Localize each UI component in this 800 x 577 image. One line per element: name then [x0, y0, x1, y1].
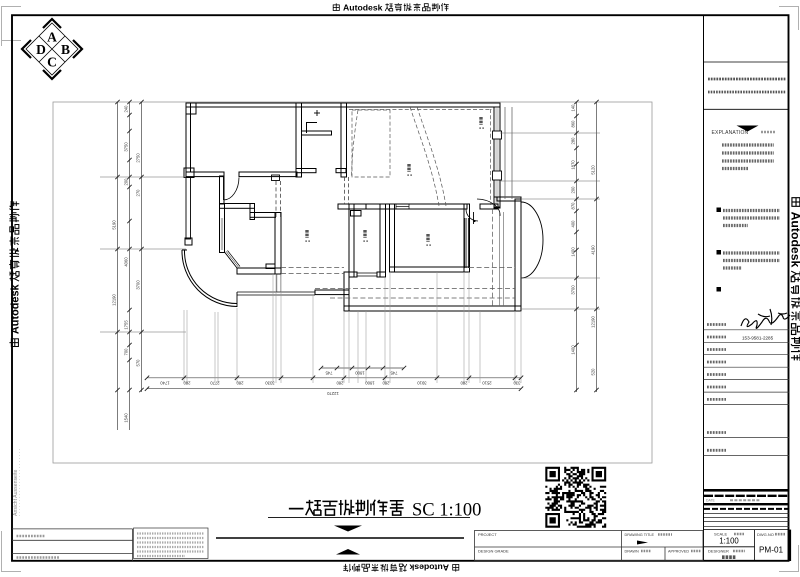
svg-text:520: 520 [591, 368, 596, 376]
svg-text:280: 280 [236, 380, 244, 385]
svg-text:Ansicht Aussenseite: Ansicht Aussenseite [13, 469, 19, 516]
svg-text:12190: 12190 [591, 316, 596, 328]
svg-text:DRAWN: DRAWN [625, 550, 639, 554]
svg-text:1:100: 1:100 [719, 537, 739, 546]
svg-text:3910: 3910 [417, 380, 427, 385]
svg-text:570: 570 [136, 359, 141, 367]
svg-text:B: B [61, 42, 70, 57]
svg-text:3700: 3700 [136, 280, 141, 290]
svg-text:DWG.NO: DWG.NO [757, 532, 774, 537]
svg-text:400: 400 [571, 220, 576, 228]
svg-text:EXPLANATION: EXPLANATION [712, 130, 749, 136]
svg-text:12190: 12190 [112, 294, 117, 306]
svg-text:5190: 5190 [112, 220, 117, 230]
svg-text:1755: 1755 [124, 320, 129, 330]
svg-text:4190: 4190 [591, 245, 596, 255]
svg-text:1400: 1400 [571, 345, 576, 355]
svg-text:D: D [36, 42, 46, 57]
svg-text:2750: 2750 [136, 153, 141, 163]
svg-text:DESIGNER: DESIGNER [708, 549, 729, 554]
svg-text:DESIGN GRADE: DESIGN GRADE [478, 549, 509, 554]
svg-text:280: 280 [460, 380, 468, 385]
svg-text:1800: 1800 [355, 370, 365, 375]
svg-text:280: 280 [336, 380, 344, 385]
svg-text:2510: 2510 [482, 380, 492, 385]
svg-text:240: 240 [124, 105, 129, 113]
svg-text:700: 700 [124, 348, 129, 356]
svg-text:140: 140 [571, 104, 576, 112]
svg-text:4060: 4060 [124, 257, 129, 267]
svg-text:1740: 1740 [160, 380, 170, 385]
svg-text:1400: 1400 [571, 247, 576, 257]
svg-text:1540: 1540 [124, 413, 129, 423]
svg-text:200: 200 [571, 186, 576, 194]
svg-text:3330: 3330 [265, 380, 275, 385]
svg-text:5120: 5120 [591, 165, 596, 175]
svg-text:C: C [47, 55, 57, 70]
svg-text:870: 870 [571, 202, 576, 210]
svg-text:2770: 2770 [210, 380, 220, 385]
svg-text:1870: 1870 [571, 160, 576, 170]
svg-text:745: 745 [390, 370, 398, 375]
svg-text:PM-01: PM-01 [759, 546, 784, 555]
svg-text:1800: 1800 [365, 380, 375, 385]
svg-text:DATE: DATE [706, 498, 716, 502]
svg-text:280: 280 [183, 380, 191, 385]
svg-text:153-9581-2285: 153-9581-2285 [742, 336, 774, 341]
svg-text:860: 860 [571, 120, 576, 128]
svg-text:3750: 3750 [124, 142, 129, 152]
svg-text:3700: 3700 [571, 285, 576, 295]
svg-text:A: A [47, 30, 57, 45]
svg-text:280: 280 [382, 380, 390, 385]
svg-text:200: 200 [124, 178, 129, 186]
svg-text:PROJECT: PROJECT [478, 532, 497, 537]
svg-text:270: 270 [136, 189, 141, 197]
svg-text:APPROVED: APPROVED [668, 550, 689, 554]
svg-text:745: 745 [325, 370, 333, 375]
svg-text:280: 280 [571, 137, 576, 145]
svg-text:DRAWING TITLE: DRAWING TITLE [625, 533, 655, 537]
svg-text:330: 330 [513, 380, 521, 385]
svg-text:12270: 12270 [327, 391, 339, 396]
